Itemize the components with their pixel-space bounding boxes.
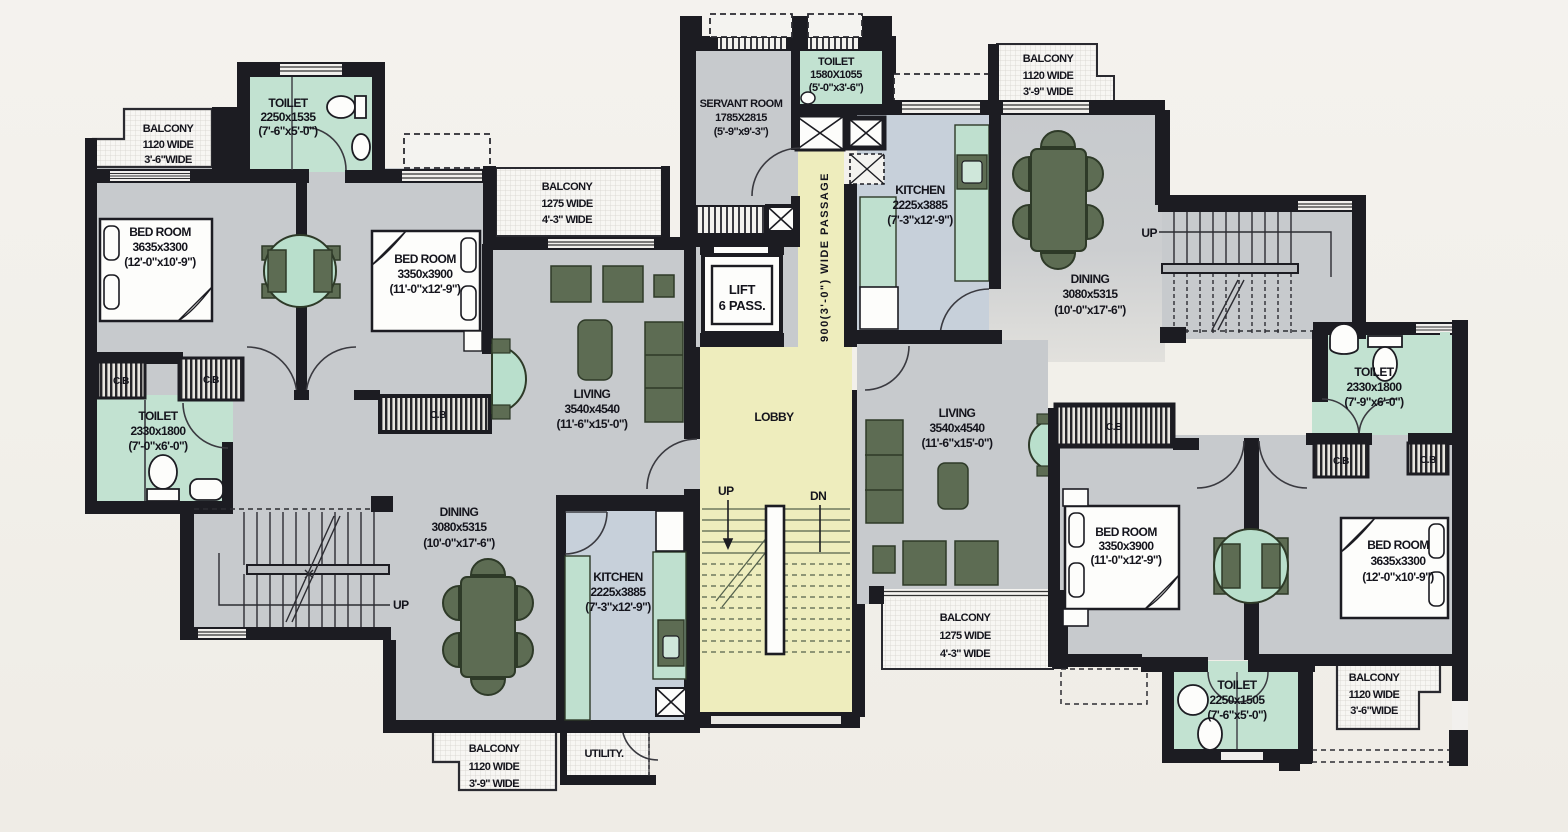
svg-text:6 PASS.: 6 PASS. — [719, 298, 766, 313]
svg-text:(7'-6"x5'-0"): (7'-6"x5'-0") — [1207, 708, 1267, 722]
svg-text:(7'-9"x6'-0"): (7'-9"x6'-0") — [1344, 395, 1404, 409]
svg-text:BED ROOM: BED ROOM — [1095, 525, 1157, 539]
svg-text:2250x1505: 2250x1505 — [1209, 693, 1265, 707]
svg-text:(11'-6"x15'-0"): (11'-6"x15'-0") — [922, 436, 993, 450]
svg-text:2225x3885: 2225x3885 — [892, 198, 948, 212]
svg-text:3'-6"WIDE: 3'-6"WIDE — [144, 154, 192, 166]
svg-text:1120 WIDE: 1120 WIDE — [1349, 689, 1400, 701]
svg-text:LIVING: LIVING — [939, 406, 976, 420]
svg-text:4'-3" WIDE: 4'-3" WIDE — [542, 214, 592, 226]
svg-text:(11'-6"x15'-0"): (11'-6"x15'-0") — [557, 417, 628, 431]
svg-text:1120 WIDE: 1120 WIDE — [1023, 70, 1074, 82]
svg-text:3080x5315: 3080x5315 — [1062, 287, 1118, 301]
svg-text:BED ROOM: BED ROOM — [129, 225, 191, 239]
svg-text:1275 WIDE: 1275 WIDE — [541, 198, 593, 210]
svg-text:(12'-0"x10'-9"): (12'-0"x10'-9") — [124, 255, 196, 269]
svg-text:3350x3900: 3350x3900 — [1098, 539, 1154, 553]
svg-text:2225x3885: 2225x3885 — [590, 585, 646, 599]
svg-text:1120 WIDE: 1120 WIDE — [469, 761, 520, 773]
svg-text:DINING: DINING — [440, 505, 479, 519]
svg-text:(10'-0"x17'-6"): (10'-0"x17'-6") — [423, 536, 495, 550]
svg-text:2250x1535: 2250x1535 — [260, 110, 316, 124]
svg-text:TOILET: TOILET — [1217, 678, 1257, 692]
svg-text:3635x3300: 3635x3300 — [1370, 554, 1426, 568]
svg-text:C.B: C.B — [203, 375, 219, 386]
svg-text:UP: UP — [718, 484, 734, 498]
svg-text:3540x4540: 3540x4540 — [929, 421, 985, 435]
svg-text:4'-3" WIDE: 4'-3" WIDE — [940, 648, 990, 660]
svg-text:UP: UP — [1141, 226, 1157, 240]
svg-text:C.B: C.B — [1106, 422, 1122, 433]
svg-text:3'-6"WIDE: 3'-6"WIDE — [1350, 705, 1398, 717]
svg-text:1120 WIDE: 1120 WIDE — [143, 139, 194, 151]
svg-text:3350x3900: 3350x3900 — [397, 267, 453, 281]
svg-text:BALCONY: BALCONY — [940, 612, 992, 624]
svg-text:TOILET: TOILET — [138, 409, 178, 423]
svg-text:3080x5315: 3080x5315 — [431, 520, 487, 534]
svg-text:BALCONY: BALCONY — [1023, 53, 1075, 65]
svg-text:LIVING: LIVING — [574, 387, 611, 401]
svg-text:BALCONY: BALCONY — [1349, 672, 1401, 684]
svg-text:BALCONY: BALCONY — [469, 743, 521, 755]
svg-text:(10'-0"x17'-6"): (10'-0"x17'-6") — [1054, 303, 1126, 317]
svg-text:900(3'-0") WIDE PASSAGE: 900(3'-0") WIDE PASSAGE — [819, 174, 831, 342]
svg-text:(7'-0"x6'-0"): (7'-0"x6'-0") — [128, 439, 188, 453]
svg-text:BED ROOM: BED ROOM — [1367, 538, 1429, 552]
svg-text:(11'-0"x12'-9"): (11'-0"x12'-9") — [1091, 553, 1162, 567]
svg-text:1580X1055: 1580X1055 — [810, 69, 862, 81]
svg-text:1785X2815: 1785X2815 — [715, 112, 767, 124]
svg-text:(7'-6"x5'-0"): (7'-6"x5'-0") — [258, 124, 318, 138]
svg-text:1275 WIDE: 1275 WIDE — [939, 630, 991, 642]
svg-text:LOBBY: LOBBY — [754, 410, 794, 424]
svg-text:BALCONY: BALCONY — [143, 123, 195, 135]
svg-text:DN: DN — [810, 489, 826, 503]
svg-text:(5'-9"x9'-3"): (5'-9"x9'-3") — [714, 126, 769, 138]
svg-text:(7'-3"x12'-9"): (7'-3"x12'-9") — [887, 213, 953, 227]
svg-text:(7'-3"x12'-9"): (7'-3"x12'-9") — [585, 600, 651, 614]
svg-text:(5'-0"x3'-6"): (5'-0"x3'-6") — [809, 82, 864, 94]
svg-text:3635x3300: 3635x3300 — [132, 240, 188, 254]
svg-text:C.B: C.B — [1333, 456, 1349, 467]
svg-text:UTILITY.: UTILITY. — [585, 748, 624, 760]
svg-text:TOILET: TOILET — [268, 96, 308, 110]
svg-text:BED ROOM: BED ROOM — [394, 252, 456, 266]
svg-text:UP: UP — [393, 598, 409, 612]
svg-text:C.B: C.B — [113, 376, 129, 387]
svg-text:DINING: DINING — [1071, 272, 1110, 286]
svg-text:BALCONY: BALCONY — [542, 181, 594, 193]
svg-text:LIFT: LIFT — [729, 282, 756, 297]
svg-text:(12'-0"x10'-9"): (12'-0"x10'-9") — [1362, 570, 1434, 584]
svg-text:SERVANT ROOM: SERVANT ROOM — [700, 98, 783, 110]
svg-text:TOILET: TOILET — [818, 56, 855, 68]
svg-text:2330x1800: 2330x1800 — [130, 424, 186, 438]
svg-text:KITCHEN: KITCHEN — [593, 570, 642, 584]
svg-text:(11'-0"x12'-9"): (11'-0"x12'-9") — [390, 282, 461, 296]
svg-text:3'-9" WIDE: 3'-9" WIDE — [1023, 86, 1073, 98]
svg-text:2330x1800: 2330x1800 — [1346, 380, 1402, 394]
svg-text:TOILET: TOILET — [1354, 365, 1394, 379]
svg-text:3540x4540: 3540x4540 — [564, 402, 620, 416]
svg-text:C.B: C.B — [430, 410, 446, 421]
svg-text:3'-9" WIDE: 3'-9" WIDE — [469, 778, 519, 790]
svg-text:KITCHEN: KITCHEN — [895, 183, 944, 197]
svg-text:C.B: C.B — [1420, 455, 1436, 466]
